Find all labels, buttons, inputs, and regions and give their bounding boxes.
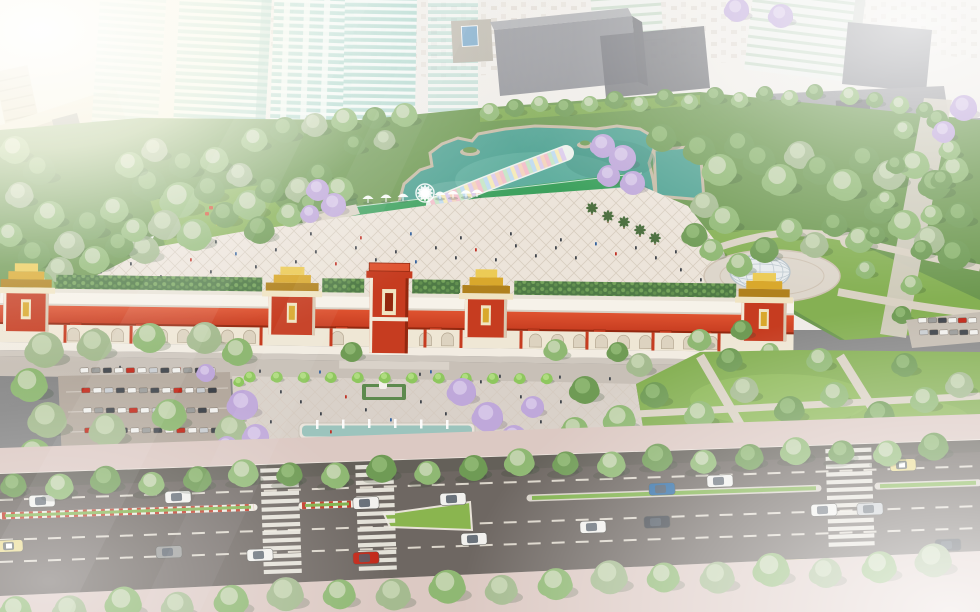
atmosphere-overlays: [0, 0, 980, 612]
aerial-city-park-rendering: [0, 0, 980, 612]
scene-canvas: [0, 0, 980, 612]
sun-glare: [0, 0, 980, 612]
